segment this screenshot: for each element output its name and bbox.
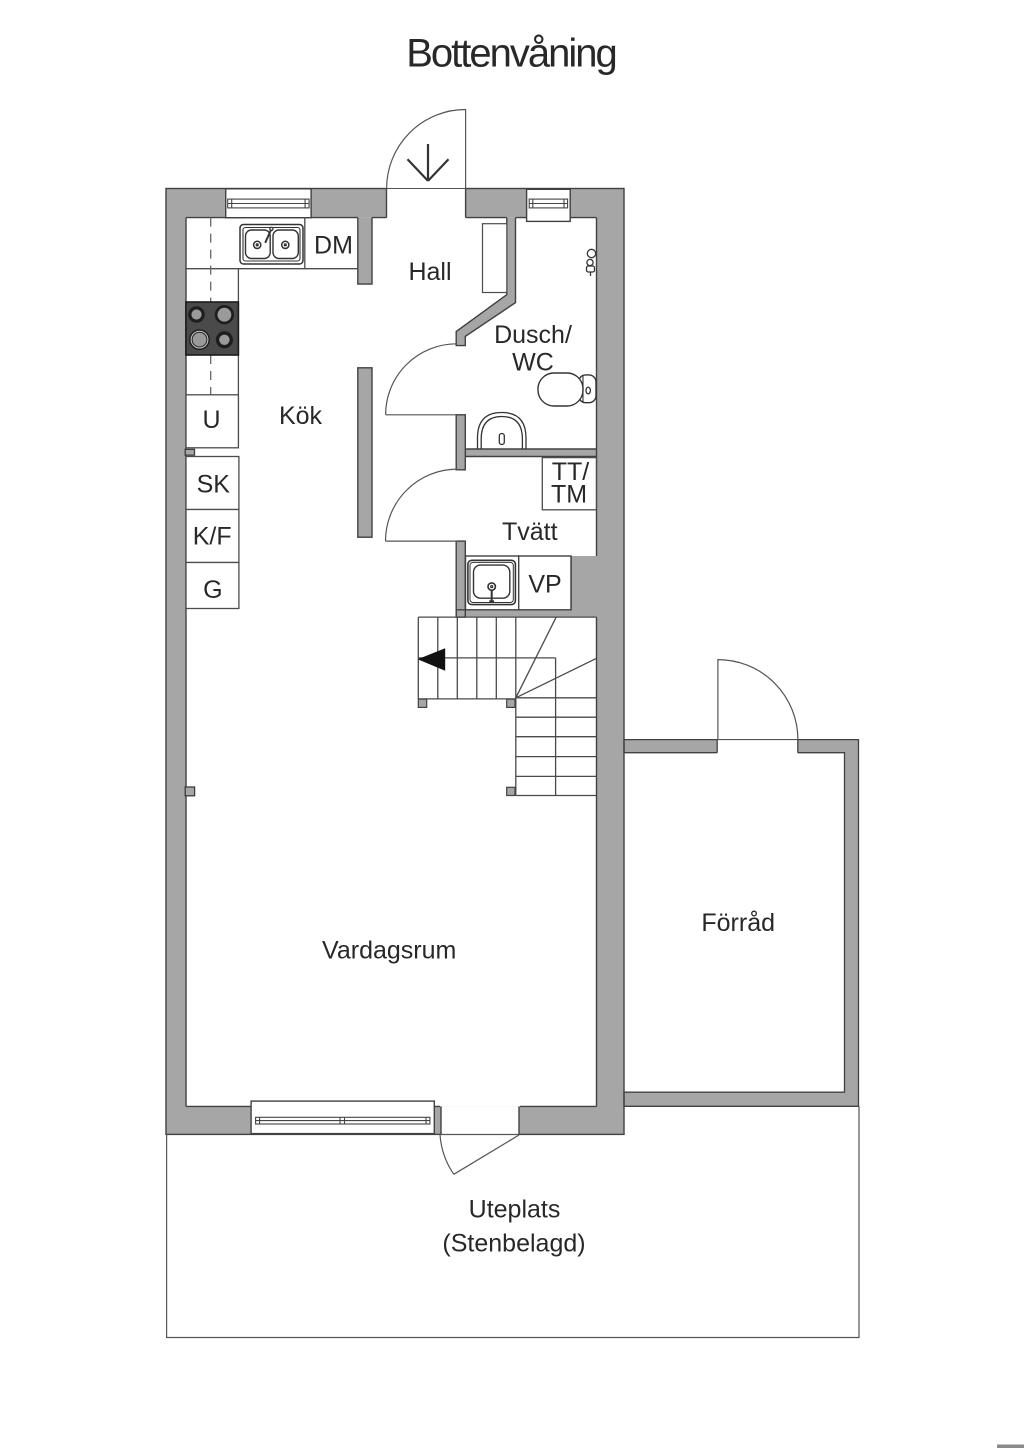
svg-text:Tvätt: Tvätt [502, 518, 558, 546]
svg-text:Vardagsrum: Vardagsrum [322, 937, 456, 965]
svg-text:VP: VP [528, 571, 561, 599]
svg-text:U: U [202, 406, 220, 434]
svg-text:Förråd: Förråd [701, 909, 775, 937]
svg-text:Kök: Kök [279, 402, 323, 430]
svg-text:G: G [203, 576, 222, 604]
svg-text:TM: TM [551, 481, 587, 509]
svg-text:DM: DM [314, 232, 353, 260]
svg-text:Hall: Hall [408, 258, 451, 286]
svg-text:WC: WC [512, 349, 554, 377]
svg-text:Bottenvåning: Bottenvåning [406, 32, 616, 76]
svg-text:K/F: K/F [193, 523, 232, 551]
svg-text:(Stenbelagd): (Stenbelagd) [442, 1230, 585, 1258]
svg-text:Dusch/: Dusch/ [494, 321, 572, 349]
svg-text:Uteplats: Uteplats [469, 1196, 561, 1224]
svg-text:SK: SK [197, 471, 231, 499]
